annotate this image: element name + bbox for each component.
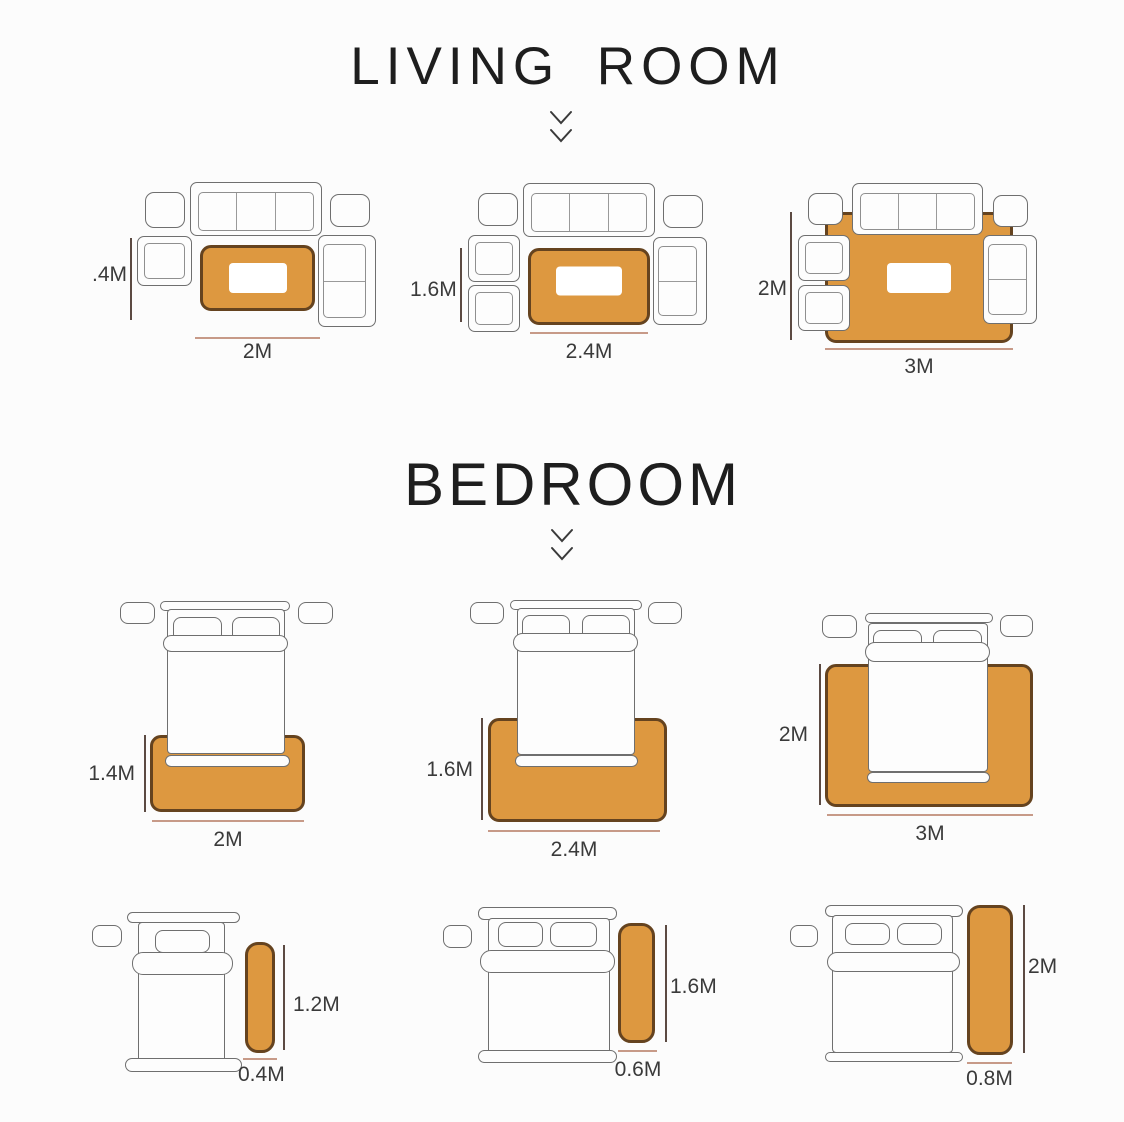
width-dimension-line — [488, 830, 660, 832]
width-dimension-line — [825, 348, 1013, 350]
living-room-title: LIVING ROOM — [350, 36, 785, 97]
nightstand — [822, 615, 857, 638]
armchair — [137, 236, 192, 286]
bed-foot-bar — [165, 755, 290, 767]
living-room-rug-diagram-2m: .4M 2M — [85, 178, 415, 378]
height-dimension-label: 1.2M — [293, 993, 340, 1016]
runner-rug — [967, 905, 1013, 1055]
width-dimension-line — [530, 332, 648, 334]
width-dimension-line — [827, 814, 1033, 816]
coffee-table — [887, 263, 951, 293]
armchair — [468, 285, 520, 332]
height-dimension-line — [460, 248, 462, 322]
sofa — [190, 182, 322, 236]
width-dimension-label: 2.4M — [530, 340, 648, 363]
loveseat — [983, 235, 1037, 324]
sofa-seat — [531, 193, 647, 232]
nightstand — [470, 602, 504, 624]
pillow — [845, 923, 890, 945]
nightstand — [120, 602, 155, 624]
height-dimension-line — [819, 664, 821, 805]
side-table — [808, 193, 843, 225]
nightstand — [790, 925, 818, 947]
rug — [200, 245, 315, 311]
width-dimension-label: 0.6M — [613, 1058, 663, 1081]
bed-foot-bar — [515, 755, 638, 767]
width-dimension-label: 3M — [825, 355, 1013, 378]
height-dimension-label: 1.6M — [410, 278, 455, 301]
sofa-seat — [198, 192, 314, 231]
bedroom-rug-diagram-3m: 2M 3M — [770, 595, 1090, 855]
sofa — [852, 183, 983, 235]
rug — [528, 248, 650, 325]
height-dimension-label: 2M — [750, 277, 787, 300]
loveseat-seat — [988, 244, 1027, 315]
pillow — [897, 923, 942, 945]
width-dimension-line — [152, 820, 304, 822]
pillow — [498, 922, 543, 947]
width-dimension-label: 0.8M — [962, 1067, 1017, 1090]
bedside-runner-diagram-0-4m: 1.2M 0.4M — [70, 895, 410, 1110]
living-room-rug-diagram-2-4m: 1.6M 2.4M — [410, 178, 740, 378]
bed-duvet-bar — [132, 952, 233, 975]
loveseat — [318, 235, 376, 327]
height-dimension-label: .4M — [85, 263, 127, 286]
side-table — [993, 195, 1028, 227]
sofa-seat — [860, 193, 975, 230]
double-chevron-down-icon — [549, 110, 573, 148]
armchair-seat — [144, 243, 185, 279]
width-dimension-label: 2.4M — [488, 838, 660, 861]
coffee-table — [229, 263, 287, 293]
height-dimension-line — [1023, 905, 1025, 1053]
armchair — [798, 285, 850, 331]
bed-foot-bar — [825, 1052, 963, 1062]
nightstand — [92, 925, 122, 947]
width-dimension-line — [243, 1058, 277, 1060]
pillow — [550, 922, 597, 947]
height-dimension-label: 2M — [1028, 955, 1057, 978]
bedside-runner-diagram-0-6m: 1.6M 0.6M — [420, 895, 740, 1110]
side-table — [478, 193, 518, 226]
nightstand — [1000, 615, 1033, 637]
bed-foot-bar — [478, 1050, 617, 1063]
armchair — [798, 235, 850, 281]
loveseat — [653, 237, 707, 325]
height-dimension-line — [144, 735, 146, 812]
armchair — [468, 235, 520, 282]
height-dimension-label: 2M — [770, 723, 808, 746]
width-dimension-line — [618, 1050, 657, 1052]
bed-duvet-bar — [865, 642, 990, 662]
armchair-seat — [805, 292, 843, 324]
bed-duvet-bar — [480, 950, 615, 973]
width-dimension-line — [967, 1062, 1012, 1064]
bedroom-rug-diagram-2-4m: 1.6M 2.4M — [420, 595, 730, 870]
width-dimension-label: 2M — [195, 340, 320, 363]
loveseat-seat — [658, 246, 697, 316]
bed-foot-bar — [867, 772, 990, 783]
width-dimension-label: 0.4M — [238, 1063, 282, 1086]
height-dimension-line — [481, 718, 483, 820]
pillow — [155, 930, 210, 953]
armchair-seat — [805, 242, 843, 274]
runner-rug — [245, 942, 275, 1053]
living-room-rug-diagram-3m: 2M 3M — [750, 178, 1090, 393]
rug-size-guide: LIVING ROOM .4M 2M — [0, 0, 1124, 1122]
nightstand — [298, 602, 333, 624]
runner-rug — [618, 923, 655, 1043]
width-dimension-line — [195, 337, 320, 339]
bed-foot-bar — [125, 1058, 242, 1072]
side-table — [145, 192, 185, 228]
side-table — [663, 195, 703, 228]
bedside-runner-diagram-0-8m: 2M 0.8M — [760, 895, 1080, 1115]
bed-duvet-bar — [513, 633, 638, 652]
height-dimension-line — [665, 925, 667, 1042]
height-dimension-line — [283, 945, 285, 1050]
height-dimension-line — [790, 212, 792, 340]
bed-headboard — [865, 613, 993, 623]
nightstand — [443, 925, 472, 948]
armchair-seat — [475, 242, 513, 275]
height-dimension-label: 1.4M — [85, 762, 135, 785]
double-chevron-down-icon — [550, 528, 574, 566]
height-dimension-label: 1.6M — [420, 758, 473, 781]
width-dimension-label: 2M — [152, 828, 304, 851]
side-table — [330, 194, 370, 227]
bedroom-title: BEDROOM — [404, 450, 742, 519]
loveseat-seat — [323, 244, 366, 318]
armchair-seat — [475, 292, 513, 325]
bed-duvet-bar — [827, 952, 960, 972]
height-dimension-label: 1.6M — [670, 975, 717, 998]
nightstand — [648, 602, 682, 624]
bed-duvet-bar — [163, 635, 288, 652]
sofa — [523, 183, 655, 237]
coffee-table — [556, 266, 622, 295]
height-dimension-line — [130, 238, 132, 320]
width-dimension-label: 3M — [827, 822, 1033, 845]
bedroom-rug-diagram-2m: 1.4M 2M — [85, 595, 395, 860]
